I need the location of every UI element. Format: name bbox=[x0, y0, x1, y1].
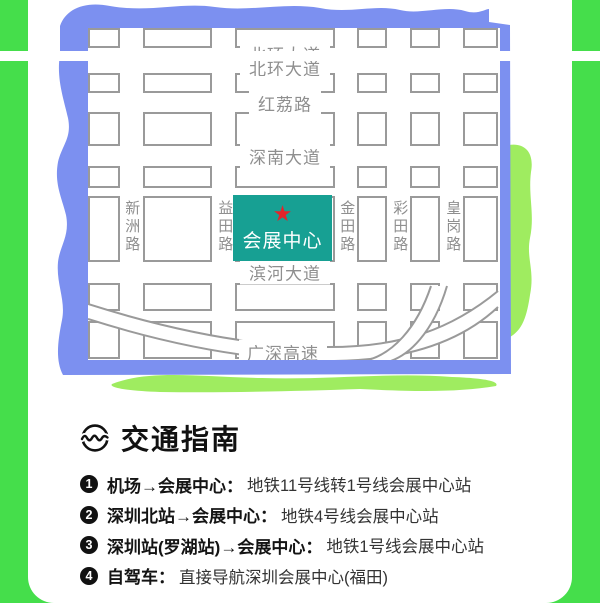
transport-guide-header: 交通指南 bbox=[80, 418, 560, 458]
transport-item-driving: 4 自驾车： 直接导航深圳会展中心(福田) bbox=[80, 561, 560, 592]
road-label-caitian: 彩田路 bbox=[391, 200, 408, 254]
road-label-hongli: 红荔路 bbox=[249, 91, 321, 116]
item-route: 深圳北站→会展中心： bbox=[107, 502, 277, 527]
transport-guide-title: 交通指南 bbox=[121, 418, 241, 458]
screenshot-seam bbox=[0, 51, 600, 61]
road-label-guangshen-expressway: 广深高速 bbox=[239, 340, 327, 365]
road-label-beihuan: 北环大道 bbox=[225, 61, 345, 76]
item-detail: 地铁1号线会展中心站 bbox=[326, 533, 484, 557]
item-detail: 直接导航深圳会展中心(福田) bbox=[179, 564, 388, 588]
item-number-badge: 3 bbox=[80, 536, 98, 554]
item-number-badge: 1 bbox=[80, 475, 98, 493]
item-route: 自驾车： bbox=[107, 563, 175, 588]
route-wave-icon bbox=[80, 423, 110, 453]
transport-item-luohu-station: 3 深圳站(罗湖站)→会展中心： 地铁1号线会展中心站 bbox=[80, 530, 560, 561]
convention-center-marker: ★ 会展中心 bbox=[233, 195, 332, 261]
red-star-icon: ★ bbox=[273, 204, 293, 224]
item-route: 机场→会展中心： bbox=[107, 472, 243, 497]
road-label-xinzhou: 新洲路 bbox=[123, 200, 140, 254]
item-number-badge: 4 bbox=[80, 567, 98, 585]
road-label-jintian: 金田路 bbox=[338, 200, 355, 254]
transport-guide-section: 交通指南 1 机场→会展中心： 地铁11号线转1号线会展中心站 2 深圳北站→会… bbox=[80, 418, 560, 591]
item-route: 深圳站(罗湖站)→会展中心： bbox=[107, 533, 322, 558]
road-label-yitian: 益田路 bbox=[216, 200, 233, 254]
item-number-badge: 2 bbox=[80, 506, 98, 524]
road-label-binhe: 滨河大道 bbox=[240, 260, 330, 285]
transport-items: 1 机场→会展中心： 地铁11号线转1号线会展中心站 2 深圳北站→会展中心： … bbox=[80, 469, 560, 591]
expressway-curves bbox=[88, 28, 500, 360]
road-label-shennan: 深南大道 bbox=[240, 144, 330, 169]
item-detail: 地铁4号线会展中心站 bbox=[281, 503, 439, 527]
transport-item-airport: 1 机场→会展中心： 地铁11号线转1号线会展中心站 bbox=[80, 469, 560, 500]
city-map: 北环大道 北环大道 红荔路 深南大道 滨河大道 广深高速 新洲路 益田路 金田路… bbox=[88, 28, 500, 360]
item-detail: 地铁11号线转1号线会展中心站 bbox=[247, 472, 471, 496]
transport-item-north-station: 2 深圳北站→会展中心： 地铁4号线会展中心站 bbox=[80, 500, 560, 531]
poster: 北环大道 北环大道 红荔路 深南大道 滨河大道 广深高速 新洲路 益田路 金田路… bbox=[0, 0, 600, 603]
convention-center-label: 会展中心 bbox=[242, 226, 322, 253]
road-label-huanggang: 皇岗路 bbox=[444, 200, 461, 254]
